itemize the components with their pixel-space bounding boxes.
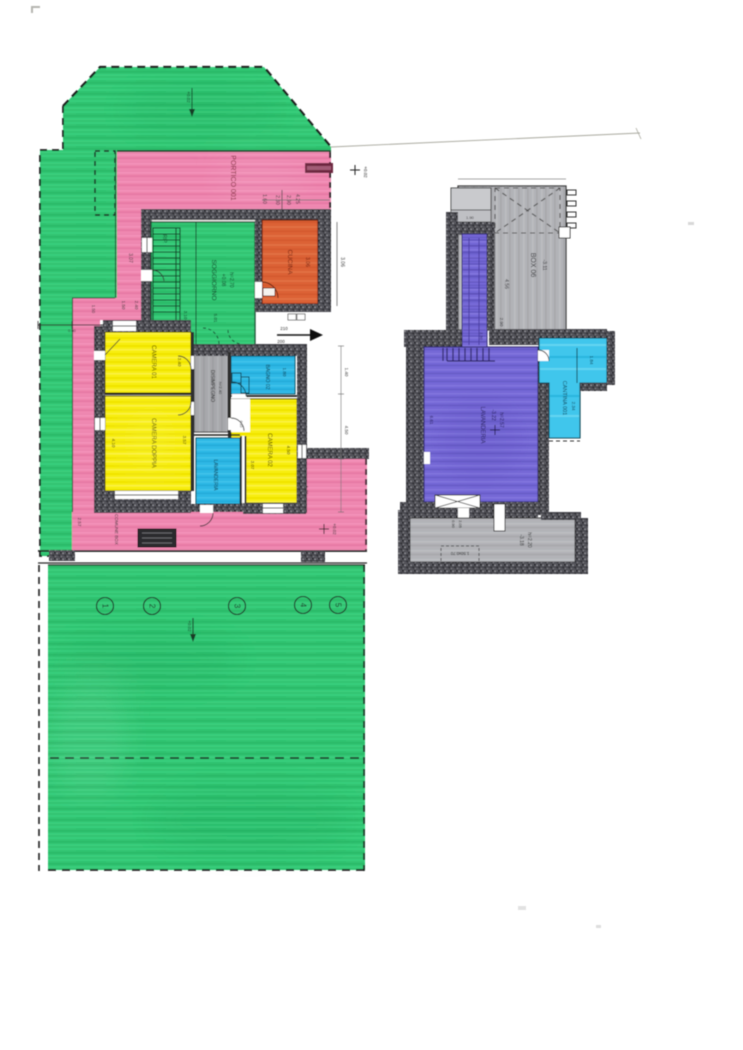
svg-text:h=2.40: h=2.40 bbox=[218, 382, 223, 395]
svg-text:+0.02: +0.02 bbox=[363, 166, 368, 178]
svg-text:1.50x0.70: 1.50x0.70 bbox=[450, 551, 469, 556]
svg-text:2.90: 2.90 bbox=[499, 318, 504, 327]
svg-text:4: 4 bbox=[299, 603, 308, 608]
svg-text:2.40: 2.40 bbox=[134, 301, 139, 310]
svg-text:3.07: 3.07 bbox=[250, 461, 255, 470]
svg-text:5.01: 5.01 bbox=[213, 314, 218, 323]
svg-text:1.90: 1.90 bbox=[466, 215, 475, 220]
svg-text:3.06: 3.06 bbox=[304, 257, 310, 267]
svg-text:0.10: 0.10 bbox=[239, 421, 243, 428]
svg-text:CAMERA 01: CAMERA 01 bbox=[150, 345, 156, 379]
svg-text:3.10: 3.10 bbox=[183, 311, 188, 320]
svg-text:CAMERA 02: CAMERA 02 bbox=[266, 433, 272, 467]
svg-text:3: 3 bbox=[233, 604, 242, 609]
svg-text:5: 5 bbox=[334, 603, 343, 608]
svg-text:1.80: 1.80 bbox=[282, 368, 287, 377]
svg-text:4.10: 4.10 bbox=[111, 439, 116, 448]
svg-text:SOGGIORNO: SOGGIORNO bbox=[210, 260, 217, 301]
svg-text:4.25: 4.25 bbox=[294, 194, 300, 204]
svg-text:LAVANDERIA: LAVANDERIA bbox=[212, 460, 218, 492]
svg-text:2.50: 2.50 bbox=[479, 332, 484, 341]
svg-text:DISIMPEGNO: DISIMPEGNO bbox=[209, 370, 215, 402]
svg-text:0.60: 0.60 bbox=[68, 328, 77, 333]
svg-text:RIP.: RIP. bbox=[161, 234, 167, 243]
svg-text:BAGNO 02: BAGNO 02 bbox=[264, 364, 270, 389]
svg-text:h=2.70: h=2.70 bbox=[228, 272, 234, 288]
svg-text:+0.02: +0.02 bbox=[187, 620, 192, 632]
svg-text:-3.18: -3.18 bbox=[518, 534, 524, 546]
svg-text:2.05: 2.05 bbox=[458, 520, 463, 529]
svg-text:3.07: 3.07 bbox=[127, 253, 133, 263]
svg-text:4.50: 4.50 bbox=[344, 426, 349, 435]
svg-text:0.90: 0.90 bbox=[451, 520, 456, 529]
svg-text:1.50: 1.50 bbox=[121, 301, 126, 310]
svg-text:6.61: 6.61 bbox=[429, 416, 434, 425]
svg-text:3.06: 3.06 bbox=[339, 257, 345, 267]
svg-text:4.50: 4.50 bbox=[286, 446, 291, 455]
svg-text:BOX 06: BOX 06 bbox=[529, 253, 536, 278]
svg-text:-3.11: -3.11 bbox=[541, 259, 547, 270]
svg-text:+0.08: +0.08 bbox=[220, 274, 226, 287]
svg-text:+0.02: +0.02 bbox=[332, 523, 337, 535]
svg-text:1: 1 bbox=[101, 604, 110, 609]
svg-text:4.56: 4.56 bbox=[503, 279, 509, 289]
svg-text:1.50: 1.50 bbox=[91, 305, 96, 314]
svg-text:CUCINA: CUCINA bbox=[286, 250, 293, 276]
svg-text:2.57: 2.57 bbox=[77, 518, 82, 527]
svg-text:1.40: 1.40 bbox=[344, 368, 349, 377]
svg-text:3.57: 3.57 bbox=[182, 436, 187, 445]
svg-text:1.84: 1.84 bbox=[589, 356, 594, 365]
svg-text:CANTINA 001: CANTINA 001 bbox=[561, 381, 567, 416]
svg-text:2.34: 2.34 bbox=[571, 402, 576, 411]
svg-text:2: 2 bbox=[148, 604, 157, 609]
svg-text:200: 200 bbox=[277, 339, 285, 344]
svg-text:210: 210 bbox=[280, 326, 288, 331]
svg-text:3.40: 3.40 bbox=[177, 358, 182, 367]
svg-text:h=2.20: h=2.20 bbox=[526, 532, 532, 548]
